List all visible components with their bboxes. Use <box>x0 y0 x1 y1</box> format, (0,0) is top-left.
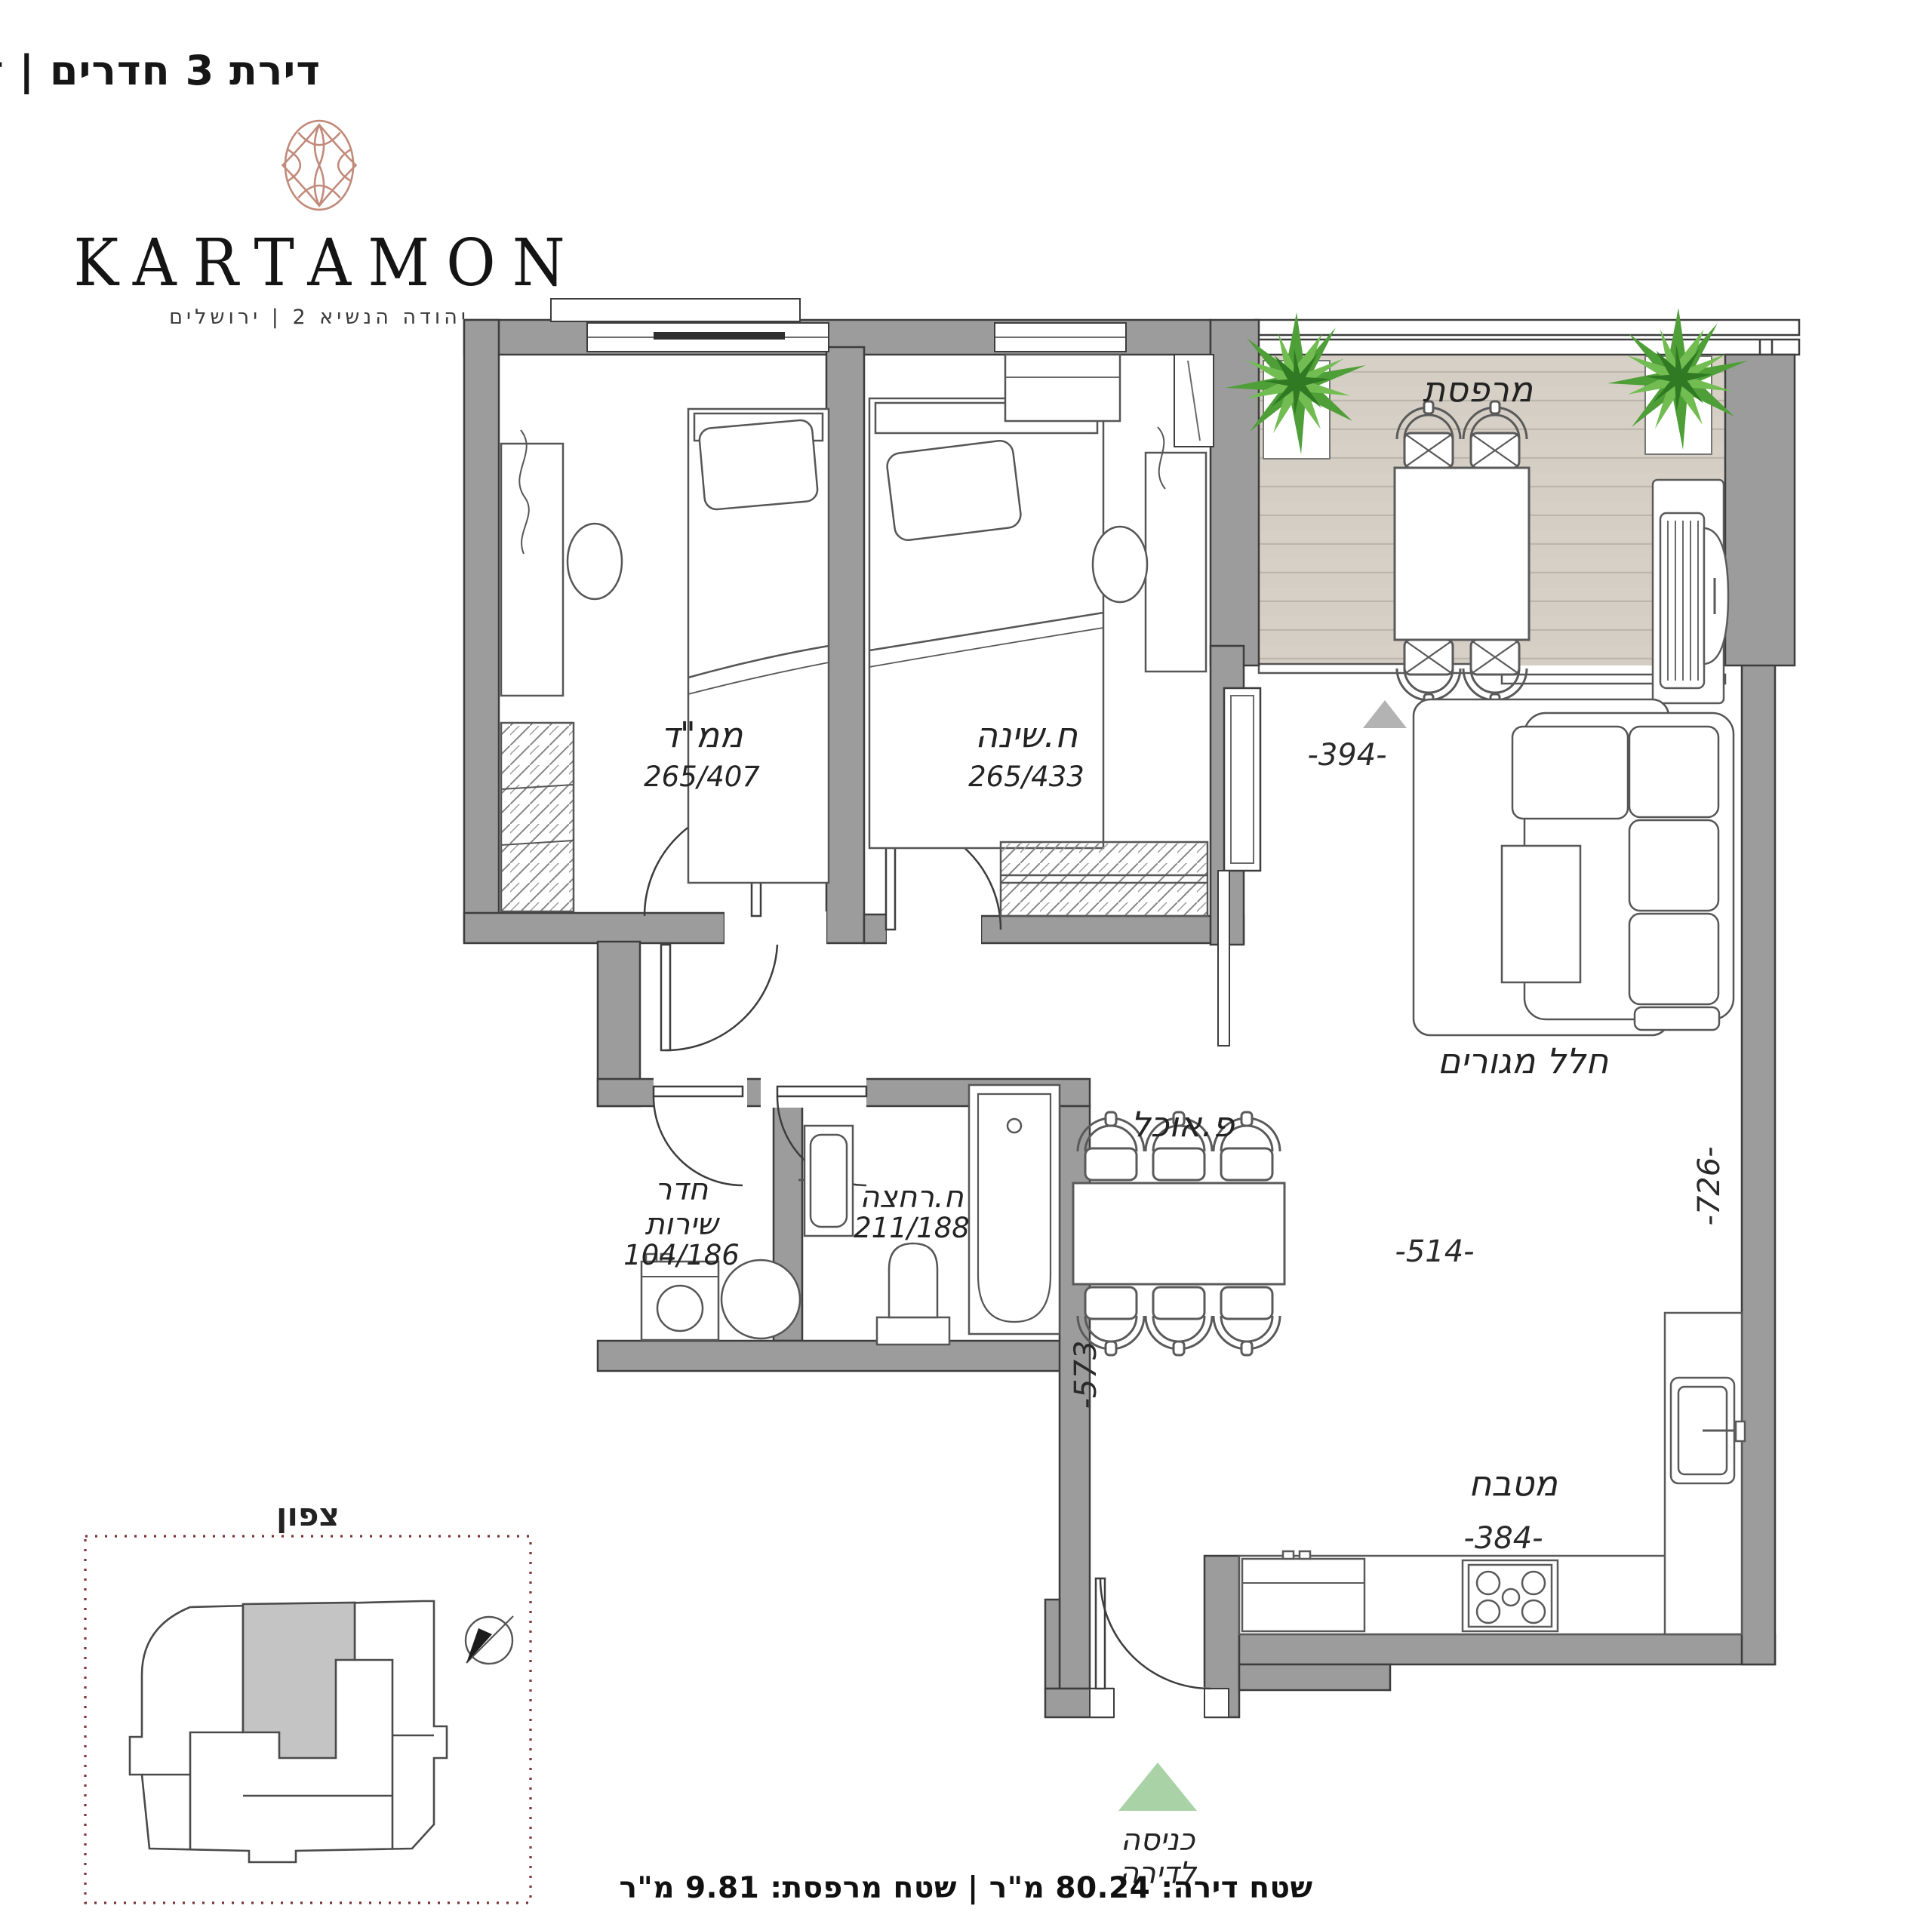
label-north: צפון <box>276 1496 340 1533</box>
label-bedroom: ח.שינה <box>975 715 1078 755</box>
dresser-icon <box>1005 355 1120 421</box>
living-west-window <box>1218 688 1260 1046</box>
outdoor-chair-icon <box>1397 640 1460 706</box>
label-balcony: מרפסת <box>1423 369 1534 410</box>
dim-573: -573 <box>1069 1341 1103 1409</box>
dining-chair-icon <box>1146 1287 1212 1355</box>
mamad-window <box>551 299 829 352</box>
dims-bath: 211/188 <box>854 1212 970 1244</box>
dim-726: -726- <box>1692 1146 1727 1225</box>
dim-384: -384- <box>1463 1521 1543 1556</box>
kitchen-sink-icon <box>1671 1378 1745 1483</box>
area-summary: שטח דירה: 80.24 מ"ר | שטח מרפסת: 9.81 מ"… <box>0 1871 1932 1905</box>
wardrobe-icon <box>1001 842 1207 916</box>
corner-window <box>1174 355 1214 447</box>
balcony-railing <box>1254 320 1799 355</box>
laundry-basket-icon <box>721 1260 800 1339</box>
label-dining: פ.אוכל <box>1131 1104 1235 1145</box>
stove-icon <box>1463 1560 1558 1631</box>
entrance-arrow-icon <box>1118 1763 1197 1811</box>
label-living: חלל מגורים <box>1438 1040 1608 1081</box>
kitchen-cabinet-icon <box>1242 1551 1364 1631</box>
bedroom-room <box>869 355 1207 916</box>
entrance-door <box>1096 1578 1211 1689</box>
floorplan-page: { "header": { "title": "דירת 3 חדרים | ד… <box>0 0 1932 1924</box>
floor-plan: ממ"ד 265/407 ח.שינה 265/433 מרפסת חלל מג… <box>0 0 1932 1924</box>
label-entrance-1: כניסה <box>1121 1823 1195 1858</box>
compass-icon <box>466 1616 513 1664</box>
entrance-marker <box>1118 1763 1197 1811</box>
dining-area <box>1073 1112 1284 1355</box>
balcony-threshold-arrow <box>1363 700 1407 728</box>
dim-514: -514- <box>1395 1234 1474 1269</box>
desk-icon <box>1146 453 1206 672</box>
dims-utility: 104/186 <box>623 1239 740 1271</box>
mamad-room <box>501 409 829 911</box>
sink-icon <box>798 1126 853 1236</box>
dims-mamad: 265/407 <box>644 761 760 793</box>
bedroom-window <box>995 323 1126 352</box>
label-kitchen: מטבח <box>1469 1463 1558 1504</box>
dim-394: -394- <box>1307 738 1386 773</box>
chair-icon <box>1093 527 1147 602</box>
label-bath: ח.רחצה <box>860 1180 963 1215</box>
label-mamad: ממ"ד <box>661 715 745 755</box>
toilet-icon <box>877 1243 949 1345</box>
lounger-icon <box>1653 480 1728 703</box>
desk-icon <box>501 444 563 696</box>
coffee-table-icon <box>1502 846 1580 982</box>
label-utility-2: שירות <box>645 1207 720 1242</box>
dining-table-icon <box>1073 1183 1284 1284</box>
dims-bedroom: 265/433 <box>968 761 1084 793</box>
wardrobe-icon <box>501 723 574 911</box>
bed-icon <box>688 409 829 883</box>
dining-chair-icon <box>1214 1287 1280 1355</box>
bathtub-icon <box>969 1085 1060 1334</box>
building-footprint <box>130 1601 447 1862</box>
label-utility-1: חדר <box>655 1173 709 1207</box>
outdoor-table-icon <box>1395 468 1529 640</box>
key-plan <box>85 1536 531 1903</box>
living-room <box>1363 699 1734 1035</box>
chair-icon <box>568 524 622 599</box>
outdoor-chair-icon <box>1463 640 1527 706</box>
